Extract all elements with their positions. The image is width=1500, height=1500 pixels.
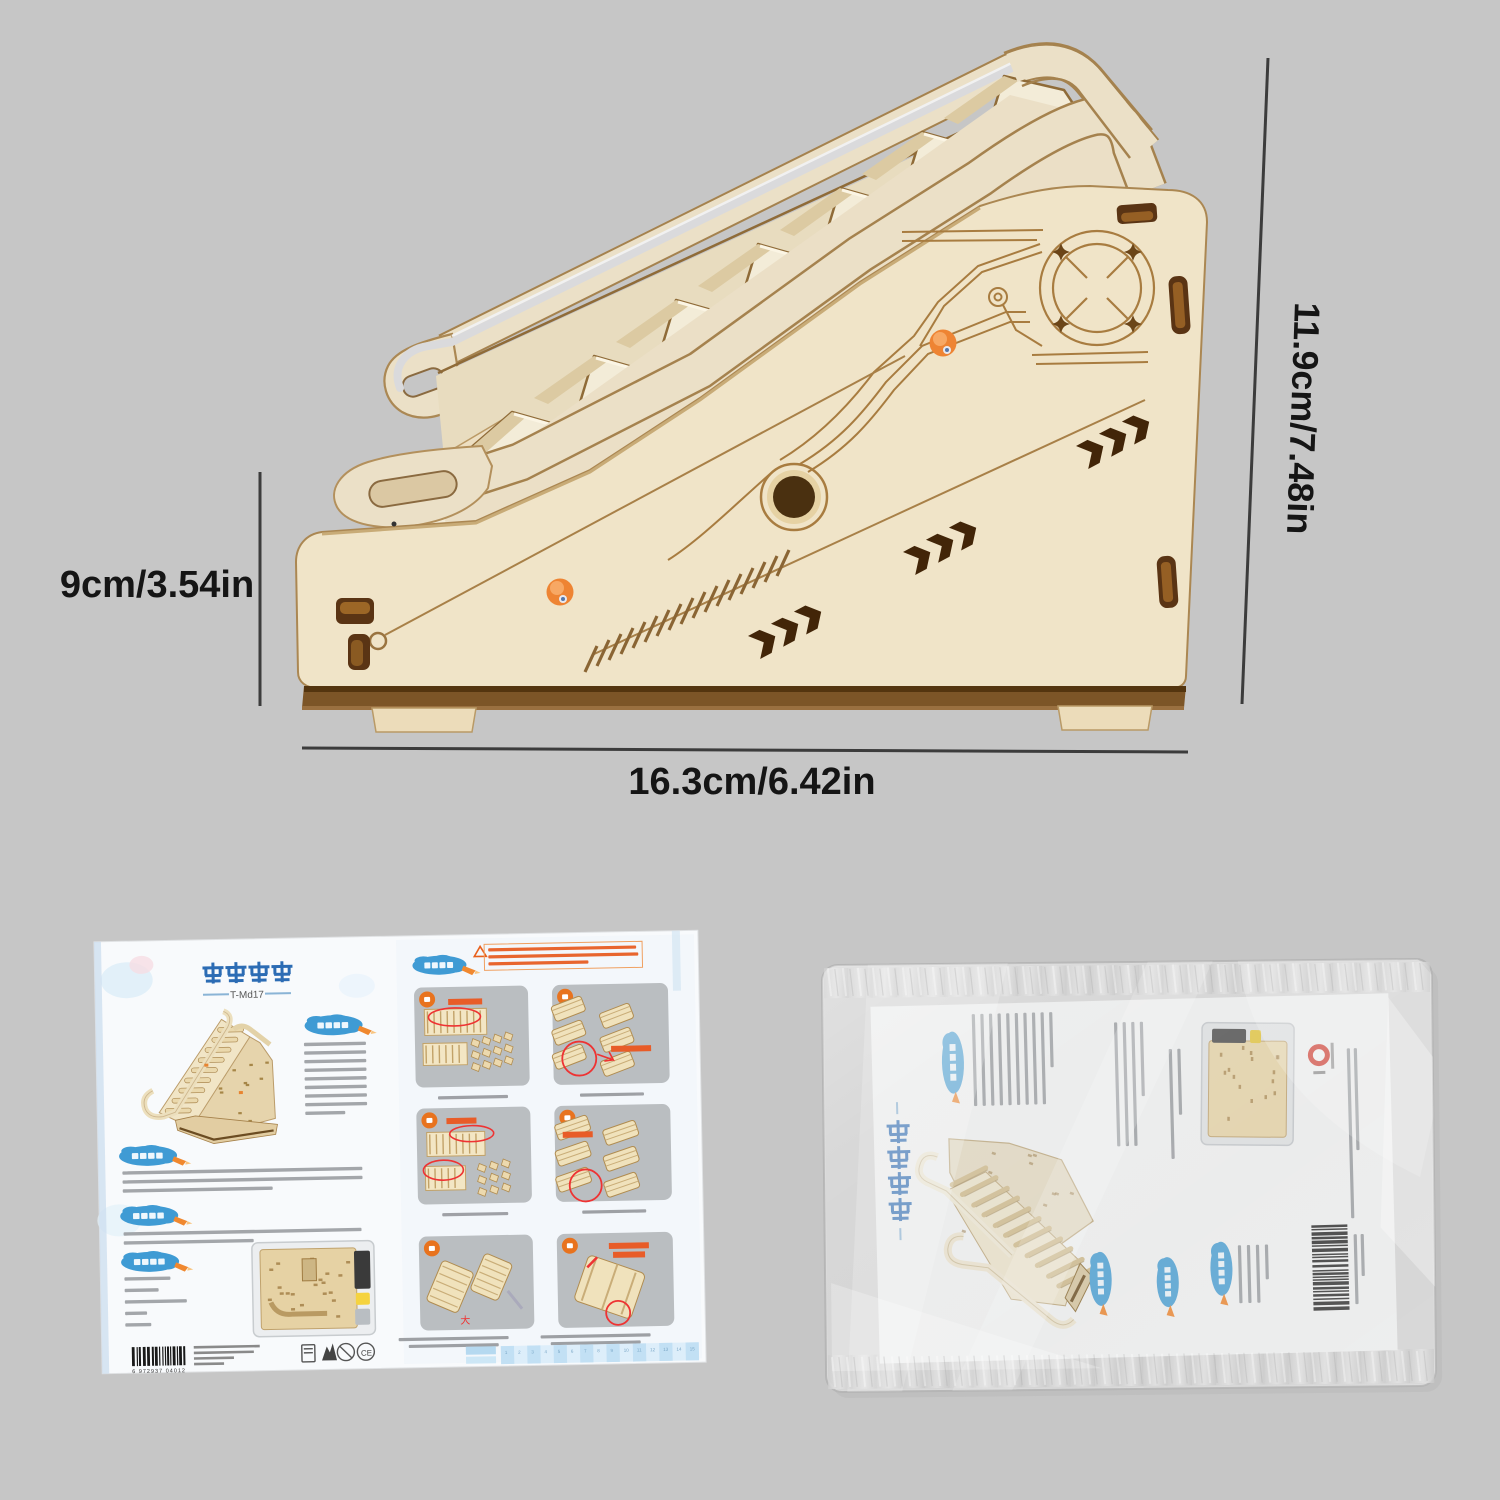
svg-text:12: 12 [650,1347,656,1352]
svg-text:大: 大 [460,1314,470,1327]
svg-text:11: 11 [637,1347,642,1352]
svg-text:13: 13 [663,1347,669,1352]
svg-text:14: 14 [676,1347,682,1352]
svg-text:11.9cm/7.48in: 11.9cm/7.48in [1279,302,1328,535]
svg-text:6 972937 04012: 6 972937 04012 [132,1368,186,1375]
svg-text:T-Md17: T-Md17 [230,990,265,1002]
svg-text:9cm/3.54in: 9cm/3.54in [60,564,254,606]
svg-text:CE: CE [361,1349,372,1358]
svg-text:16.3cm/6.42in: 16.3cm/6.42in [628,761,875,803]
svg-text:10: 10 [624,1348,630,1353]
svg-text:15: 15 [690,1346,696,1351]
